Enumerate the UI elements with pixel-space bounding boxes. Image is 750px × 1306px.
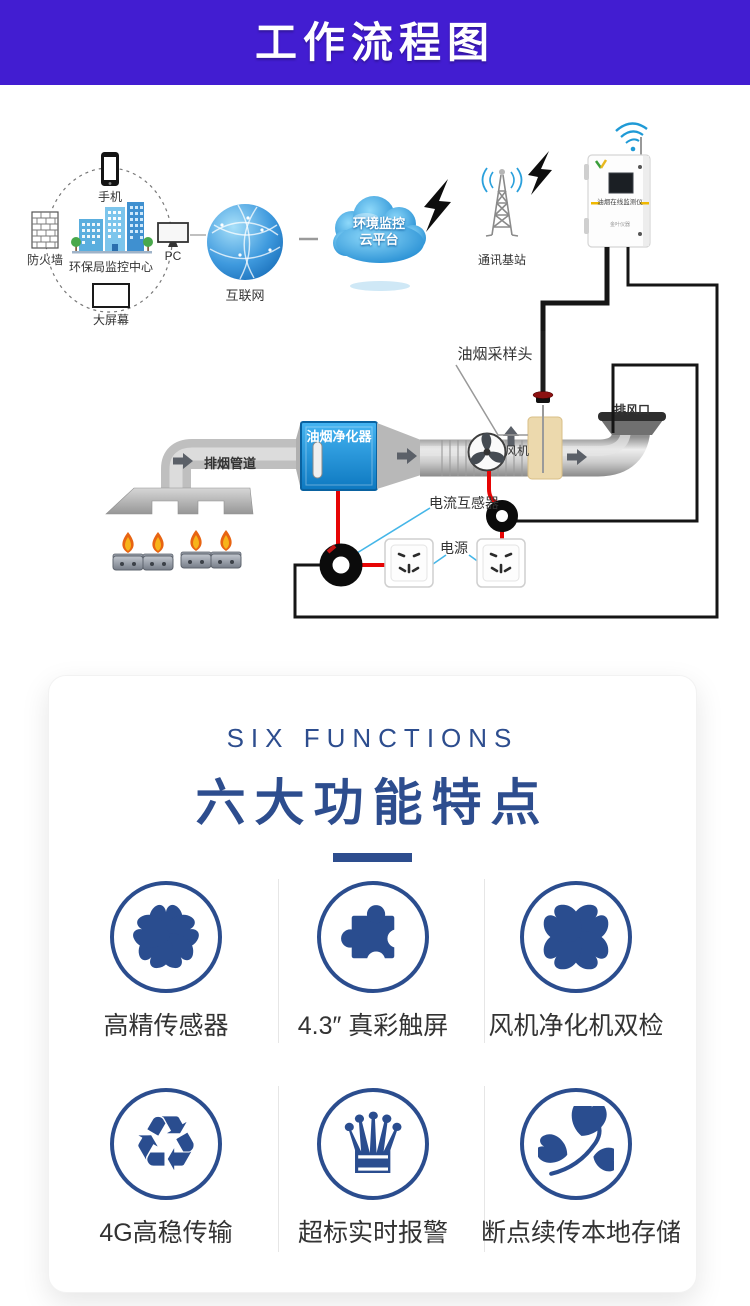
buildings-icon	[71, 202, 153, 254]
phone-icon	[101, 152, 119, 186]
big-screen-label: 大屏幕	[85, 311, 137, 328]
device-title: 油烟在线监测仪	[597, 196, 643, 206]
feature-label: 超标实时报警	[278, 1213, 468, 1249]
stoves-icon	[113, 530, 241, 570]
exhaust-hood	[106, 488, 253, 514]
feature-4g: ♻ 4G高稳传输	[71, 1088, 261, 1249]
functions-subtitle: SIX FUNCTIONS	[49, 723, 696, 754]
monitor-device	[584, 123, 650, 247]
device-brand: 金叶仪器	[604, 221, 636, 228]
feature-touchscreen: 4.3″ 真彩触屏	[278, 881, 468, 1042]
feature-dual-check: 风机净化机双检	[481, 881, 671, 1042]
cloud-platform-label: 环境监控 云平台	[330, 216, 428, 248]
wifi-icon	[616, 123, 647, 143]
feature-label: 4.3″ 真彩触屏	[278, 1006, 468, 1042]
feature-alarm: ♛ 超标实时报警	[278, 1088, 468, 1249]
purifier-label: 油烟净化器	[301, 426, 377, 445]
power-outlet-icon-2	[477, 539, 525, 587]
recycle-icon: ♻	[110, 1088, 222, 1200]
sampling-leader-line	[456, 365, 528, 435]
title-underline	[333, 853, 412, 862]
fan-label: 风机	[502, 442, 532, 459]
leaf-icon	[520, 1088, 632, 1200]
functions-title: 六大功能特点	[49, 763, 696, 835]
center-label: 环保局监控中心	[55, 258, 167, 275]
banner-title: 工作流程图	[0, 0, 750, 85]
air-outlet-label: 排风口	[606, 401, 658, 418]
big-screen-icon	[93, 284, 129, 307]
puzzle-icon	[317, 881, 429, 993]
globe-icon	[207, 204, 283, 280]
firewall-icon	[32, 212, 58, 248]
lightning-icon	[424, 179, 451, 232]
page: 工作流程图	[0, 0, 750, 1306]
feature-label: 4G高稳传输	[71, 1213, 261, 1249]
feature-storage: 断点续传本地存储	[481, 1088, 671, 1249]
functions-card: SIX FUNCTIONS 六大功能特点	[48, 675, 697, 1293]
banner: 工作流程图	[0, 0, 750, 85]
workflow-diagram: 手机 防火墙 环保局监控中心 PC 大屏幕 互联网 环境监控 云平台 通讯基站 …	[0, 85, 750, 675]
exhaust-duct-label: 排烟管道	[198, 453, 262, 472]
lightning-icon-2	[528, 151, 552, 195]
diagram-scene	[0, 85, 750, 675]
feature-label: 高精传感器	[71, 1006, 261, 1042]
base-station-label: 通讯基站	[472, 251, 532, 268]
power-label: 电源	[437, 538, 471, 558]
power-outlet-icon	[385, 539, 433, 587]
pc-label: PC	[158, 249, 188, 263]
feature-label: 断点续传本地存储	[481, 1213, 671, 1249]
base-station-icon	[483, 168, 522, 236]
sampling-patch	[528, 417, 562, 479]
fan-icon	[468, 433, 506, 471]
pc-icon	[158, 223, 188, 247]
feature-label: 风机净化机双检	[481, 1006, 671, 1042]
clover-icon	[520, 881, 632, 993]
feature-sensor: 高精传感器	[71, 881, 261, 1042]
internet-label: 互联网	[222, 285, 268, 304]
sampling-head-label: 油烟采样头	[440, 343, 550, 364]
phone-label: 手机	[88, 188, 132, 205]
flower-icon	[110, 881, 222, 993]
current-transformer-label: 电流互感器	[424, 493, 504, 513]
crown-icon: ♛	[317, 1088, 429, 1200]
